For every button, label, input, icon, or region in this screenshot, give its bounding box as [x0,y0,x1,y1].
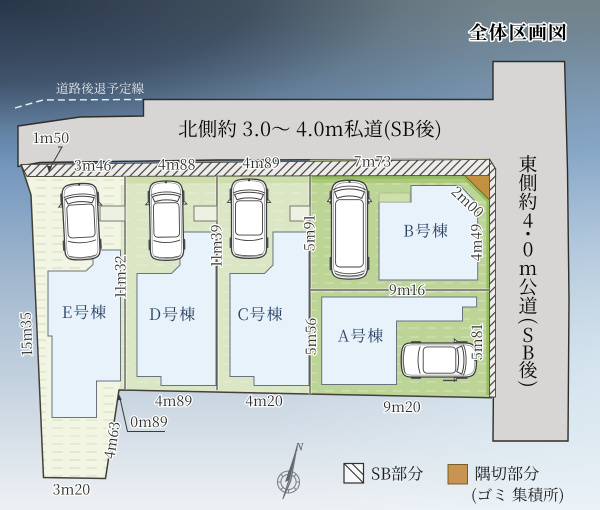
svg-text:N: N [295,442,305,454]
